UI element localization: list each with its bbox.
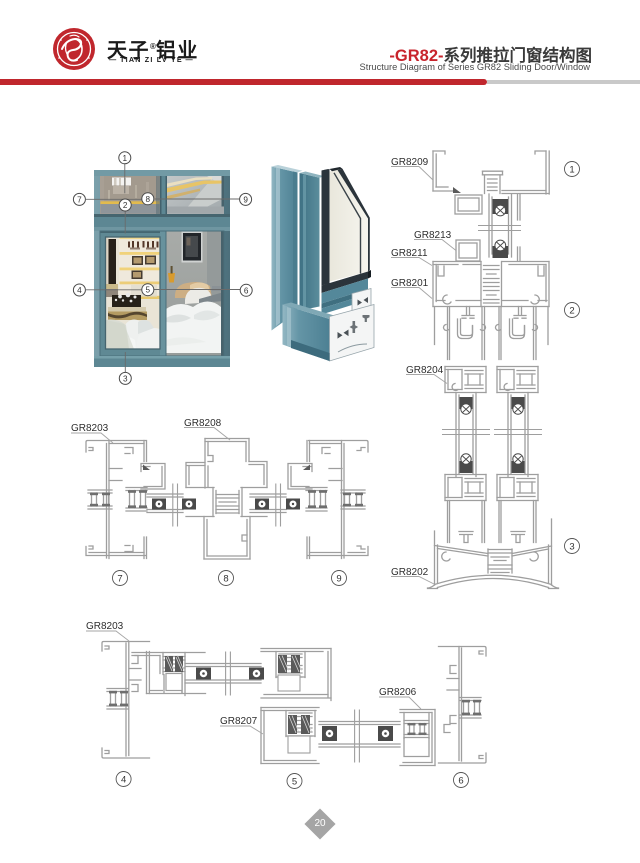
svg-text:GR8203: GR8203 bbox=[71, 423, 109, 434]
svg-text:8: 8 bbox=[223, 573, 228, 584]
svg-text:7: 7 bbox=[117, 573, 122, 584]
svg-text:GR8206: GR8206 bbox=[379, 687, 417, 698]
svg-text:1: 1 bbox=[123, 154, 128, 163]
svg-text:5: 5 bbox=[146, 286, 151, 295]
svg-text:9: 9 bbox=[243, 195, 248, 204]
svg-text:2: 2 bbox=[569, 305, 574, 316]
svg-text:1: 1 bbox=[569, 164, 574, 175]
svg-text:7: 7 bbox=[77, 195, 82, 204]
svg-text:8: 8 bbox=[146, 195, 151, 204]
svg-text:6: 6 bbox=[458, 775, 463, 786]
svg-text:GR8207: GR8207 bbox=[220, 716, 258, 727]
svg-text:5: 5 bbox=[292, 776, 297, 787]
svg-text:GR8203: GR8203 bbox=[86, 621, 124, 632]
svg-text:3: 3 bbox=[123, 374, 128, 383]
svg-text:2: 2 bbox=[123, 201, 128, 210]
svg-text:4: 4 bbox=[77, 286, 82, 295]
svg-text:4: 4 bbox=[121, 774, 126, 785]
svg-text:9: 9 bbox=[336, 573, 341, 584]
svg-text:3: 3 bbox=[569, 541, 574, 552]
svg-text:6: 6 bbox=[244, 286, 249, 295]
